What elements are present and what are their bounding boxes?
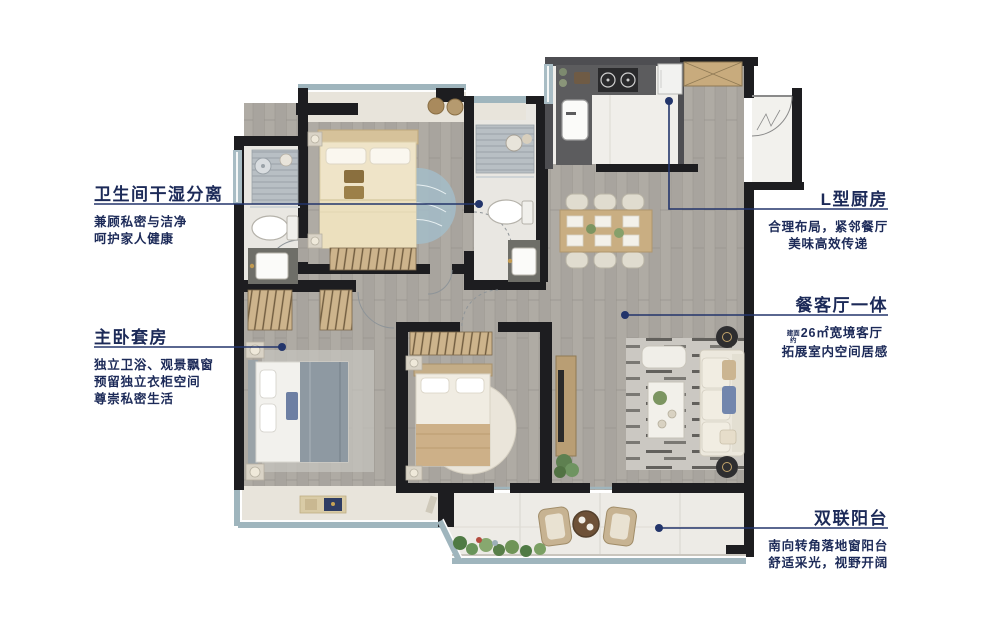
area-prefix: 建面约 <box>787 331 800 344</box>
callout-balcony-line1: 南向转角落地窗阳台 <box>768 538 888 555</box>
callout-balcony-title: 双联阳台 <box>768 510 888 528</box>
area-value: 26㎡宽境客厅 <box>801 326 883 340</box>
callout-bathroom: 卫生间干湿分离 兼顾私密与洁净 呵护家人健康 <box>94 186 224 248</box>
callout-balcony: 双联阳台 南向转角落地窗阳台 舒适采光，视野开阔 <box>768 510 888 572</box>
callout-bathroom-line2: 呵护家人健康 <box>94 231 224 248</box>
callout-balcony-line2: 舒适采光，视野开阔 <box>768 555 888 572</box>
floorplan-page: 卫生间干湿分离 兼顾私密与洁净 呵护家人健康 主卧套房 独立卫浴、观景飘窗 预留… <box>0 0 987 623</box>
callout-living-dining-area: 建面约26㎡宽境客厅 <box>782 325 888 344</box>
callout-living-dining: 餐客厅一体 建面约26㎡宽境客厅 拓展室内空间居感 <box>782 297 888 361</box>
callout-master-suite-title: 主卧套房 <box>94 329 214 347</box>
callout-living-dining-line2: 拓展室内空间居感 <box>782 344 888 361</box>
callout-kitchen: L型厨房 合理布局，紧邻餐厅 美味高效传递 <box>768 191 888 253</box>
callout-master-suite-line2: 预留独立衣柜空间 <box>94 374 214 391</box>
callout-master-suite: 主卧套房 独立卫浴、观景飘窗 预留独立衣柜空间 尊崇私密生活 <box>94 329 214 408</box>
callout-master-suite-line3: 尊崇私密生活 <box>94 391 214 408</box>
callout-master-suite-line1: 独立卫浴、观景飘窗 <box>94 357 214 374</box>
callout-kitchen-title: L型厨房 <box>768 191 888 209</box>
callout-living-dining-title: 餐客厅一体 <box>782 297 888 315</box>
callout-kitchen-line1: 合理布局，紧邻餐厅 <box>768 219 888 236</box>
callout-bathroom-title: 卫生间干湿分离 <box>94 186 224 204</box>
callout-kitchen-line2: 美味高效传递 <box>768 236 888 253</box>
dining-area <box>560 194 652 268</box>
callout-bathroom-line1: 兼顾私密与洁净 <box>94 214 224 231</box>
